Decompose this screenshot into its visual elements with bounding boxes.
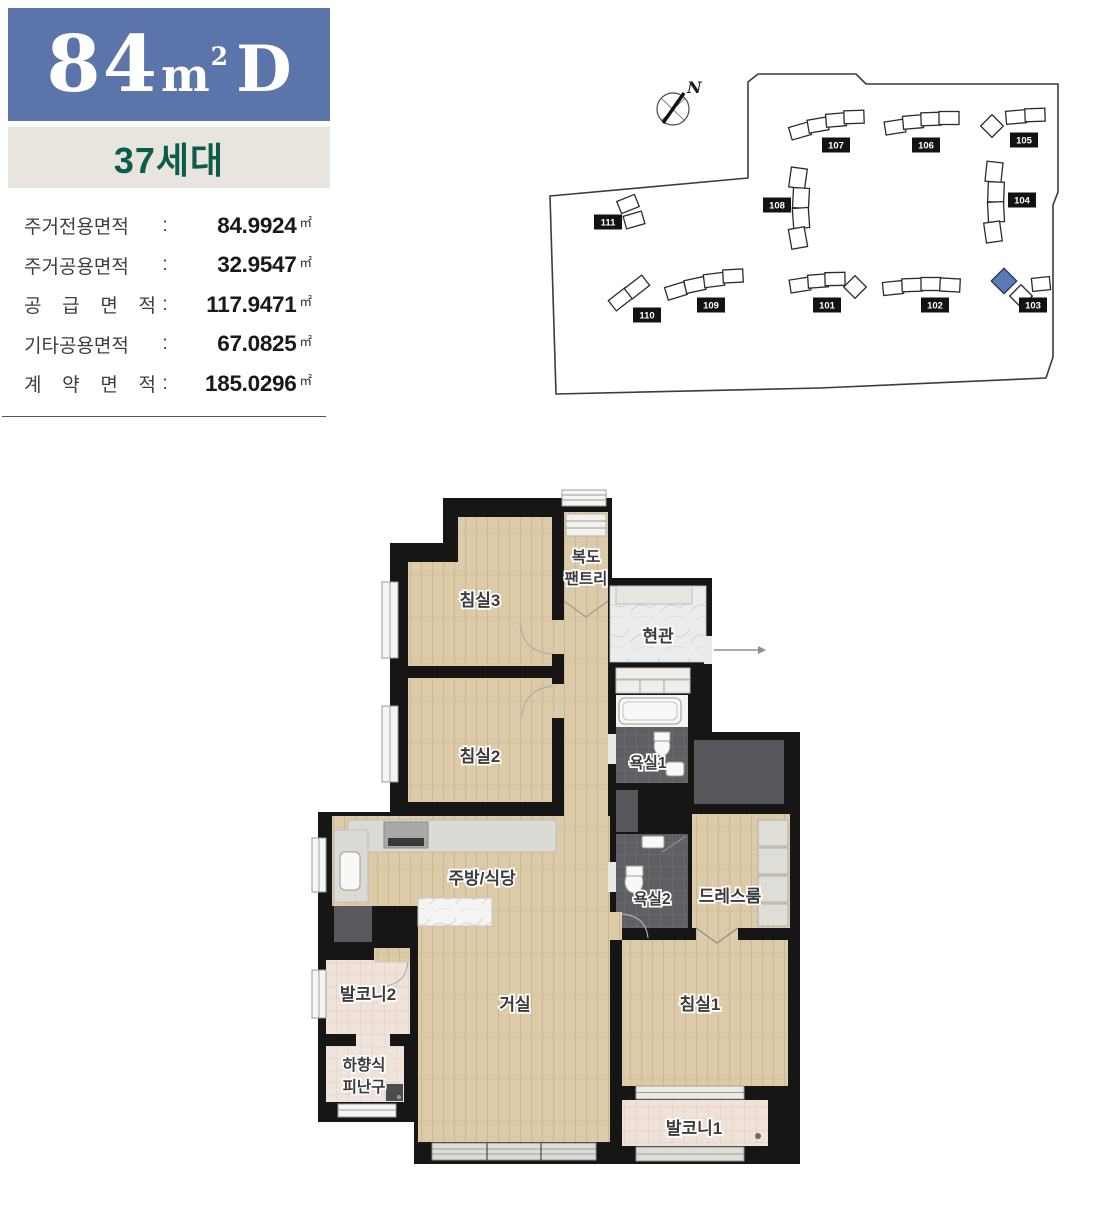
laundry-unit: [334, 906, 372, 942]
label-pantry-2: 팬트리: [565, 570, 608, 588]
area-label: 주거공용면적: [24, 252, 156, 279]
building-110-label: 110: [639, 311, 654, 322]
area-label: 기타공용면적: [24, 331, 156, 358]
area-value: 32.9547: [174, 252, 296, 278]
closet: [758, 876, 788, 902]
label-pantry-1: 복도: [572, 548, 601, 566]
building-102-label: 102: [927, 301, 943, 312]
building-101-label: 101: [819, 301, 836, 312]
unit-floor-plan: 침실3 복도 팬트리 현관 침실2 욕실1 주방/식당 욕실2 드레스룸 거실 …: [300, 470, 800, 1170]
building-109-label: 109: [703, 301, 719, 312]
area-value: 84.9924: [174, 213, 296, 239]
area-value: 117.9471: [174, 292, 296, 318]
households-count: 37세대: [114, 132, 224, 184]
unit-size-unit: m: [161, 52, 210, 98]
label-hatch-1: 하향식: [343, 1055, 386, 1074]
area-unit: ㎡: [299, 331, 312, 350]
building-105-label: 105: [1016, 136, 1033, 147]
area-row: 기타공용면적 : 67.0825 ㎡: [24, 325, 312, 365]
area-row: 주거전용면적 : 84.9924 ㎡: [24, 206, 312, 246]
label-bath2: 욕실2: [633, 890, 670, 908]
kitchen-sink: [340, 852, 360, 890]
building-107-label: 107: [828, 141, 844, 152]
closet: [758, 820, 788, 846]
area-unit: ㎡: [299, 291, 312, 310]
compass-north-label: N: [686, 78, 703, 97]
building-111-label: 111: [601, 218, 617, 229]
area-value: 185.0296: [174, 371, 296, 397]
label-bedroom3: 침실3: [460, 590, 501, 610]
unit-size-superscript: 2: [211, 44, 228, 69]
floorplan-brochure-page: 84 m 2 D 37세대 주거전용면적 : 84.9924 ㎡ 주거공용면적 …: [0, 0, 1100, 1209]
escape-hatch-cover: [386, 1084, 403, 1101]
households-badge: 37세대: [8, 127, 330, 188]
label-living: 거실: [499, 995, 530, 1014]
area-colon: :: [156, 215, 174, 237]
room-bedroom2: [408, 678, 552, 802]
site-plan: N 107 106 105: [540, 55, 1075, 400]
label-bath1: 욕실1: [629, 754, 667, 772]
closet: [758, 848, 788, 874]
label-bedroom2: 침실2: [460, 746, 501, 766]
area-label: 계 약 면 적: [24, 370, 156, 397]
shoe-cabinet: [616, 668, 690, 679]
kitchen-counter: [348, 820, 556, 852]
area-row: 공 급 면 적 : 117.9471 ㎡: [24, 285, 312, 325]
area-colon: :: [156, 254, 174, 276]
pantry-shelf: [566, 514, 606, 536]
entry-bench: [616, 680, 690, 693]
area-label: 공 급 면 적: [24, 291, 156, 318]
unit-type-title: 84 m 2 D: [8, 8, 330, 121]
area-row: 주거공용면적 : 32.9547 ㎡: [24, 246, 312, 286]
sink-bath2: [642, 836, 664, 848]
label-hatch-2: 피난구: [343, 1078, 386, 1096]
area-unit: ㎡: [299, 370, 312, 389]
label-bedroom1: 침실1: [680, 994, 721, 1014]
area-unit: ㎡: [299, 212, 312, 231]
building-103-label: 103: [1025, 301, 1041, 312]
label-balcony2: 발코니2: [340, 985, 396, 1004]
building-108-label: 108: [769, 201, 785, 212]
entry-arrow-icon: [758, 646, 766, 654]
area-value: 67.0825: [174, 331, 296, 357]
area-colon: :: [156, 373, 174, 395]
unit-type-title-text: 84 m 2 D: [46, 26, 291, 104]
utility-zone: [694, 740, 784, 804]
building-104-label: 104: [1014, 196, 1031, 207]
unit-size-number: 84: [46, 26, 159, 104]
area-spec-table: 주거전용면적 : 84.9924 ㎡ 주거공용면적 : 32.9547 ㎡ 공 …: [24, 206, 312, 404]
label-balcony1: 발코니1: [666, 1119, 722, 1138]
label-entrance: 현관: [642, 627, 674, 646]
balcony-drain: [755, 1133, 761, 1139]
kitchen-island: [418, 898, 492, 926]
closet: [758, 904, 788, 926]
entrance-sill: [616, 586, 692, 604]
unit-type-letter: D: [236, 38, 292, 102]
panel-divider: [2, 416, 326, 417]
building-106-label: 106: [918, 141, 934, 152]
label-dressroom: 드레스룸: [699, 887, 762, 906]
utility-zone-2: [616, 790, 638, 832]
sink-bath1: [666, 762, 684, 776]
area-colon: :: [156, 294, 174, 316]
label-kitchen: 주방/식당: [448, 869, 516, 888]
area-colon: :: [156, 333, 174, 355]
area-label: 주거전용면적: [24, 212, 156, 239]
area-unit: ㎡: [299, 252, 312, 271]
compass-icon: N: [657, 78, 703, 125]
area-row: 계 약 면 적 : 185.0296 ㎡: [24, 364, 312, 404]
